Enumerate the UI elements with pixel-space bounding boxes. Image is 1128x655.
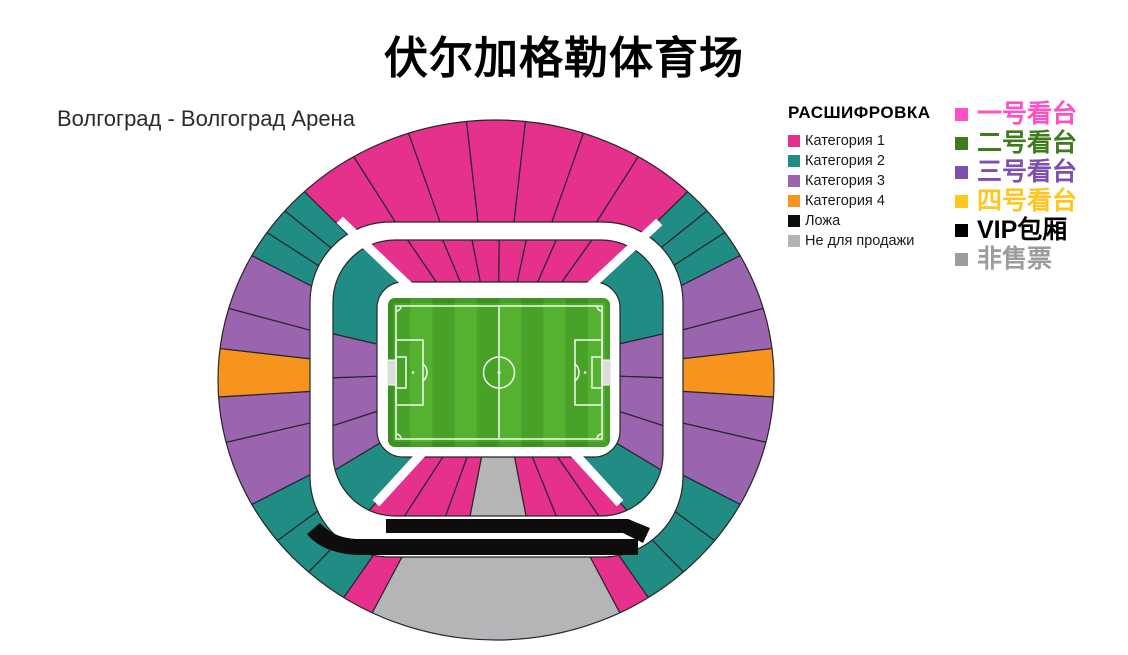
legend-chinese-rows: 一号看台二号看台三号看台四号看台VIP包厢非售票 <box>955 100 1077 274</box>
legend-label: Категория 1 <box>805 133 885 149</box>
legend-label: 一号看台 <box>977 102 1077 127</box>
legend-label: 三号看台 <box>977 160 1077 185</box>
legend-item-ru-6: Не для продажи <box>788 231 931 251</box>
legend-swatch <box>788 235 800 247</box>
legend-swatch <box>955 253 968 266</box>
legend-label: 四号看台 <box>977 189 1077 214</box>
legend-item-ru-4: Категория 4 <box>788 191 931 211</box>
legend-item-ru-2: Категория 2 <box>788 151 931 171</box>
grass-stripe <box>543 298 565 447</box>
legend-label: 非售票 <box>977 247 1052 272</box>
legend-item-cn-5: VIP包厢 <box>955 216 1077 245</box>
stadium-svg <box>0 0 1128 650</box>
legend-label: Категория 3 <box>805 173 885 189</box>
legend-item-ru-1: Категория 1 <box>788 131 931 151</box>
legend-item-cn-2: 二号看台 <box>955 129 1077 158</box>
legend-item-cn-3: 三号看台 <box>955 158 1077 187</box>
legend-swatch <box>955 195 968 208</box>
legend-swatch <box>955 108 968 121</box>
legend-swatch <box>955 166 968 179</box>
legend-russian-title: РАСШИФРОВКА <box>788 103 931 123</box>
football-pitch <box>387 298 611 447</box>
legend-item-ru-5: Ложа <box>788 211 931 231</box>
stadium-map <box>0 0 1128 655</box>
legend-swatch <box>788 135 800 147</box>
legend-russian: РАСШИФРОВКА Категория 1Категория 2Катего… <box>788 103 931 251</box>
legend-chinese: 一号看台二号看台三号看台四号看台VIP包厢非售票 <box>955 100 1077 274</box>
legend-swatch <box>788 195 800 207</box>
legend-item-cn-1: 一号看台 <box>955 100 1077 129</box>
legend-swatch <box>955 224 968 237</box>
legend-label: Категория 4 <box>805 193 885 209</box>
legend-label: Ложа <box>805 213 840 229</box>
legend-russian-rows: Категория 1Категория 2Категория 3Категор… <box>788 131 931 251</box>
legend-swatch <box>955 137 968 150</box>
legend-label: 二号看台 <box>977 131 1077 156</box>
legend-item-cn-4: 四号看台 <box>955 187 1077 216</box>
legend-swatch <box>788 155 800 167</box>
vip-loge-strips <box>307 519 650 555</box>
legend-item-cn-6: 非售票 <box>955 245 1077 274</box>
legend-item-ru-3: Категория 3 <box>788 171 931 191</box>
grass-stripe <box>499 298 521 447</box>
legend-swatch <box>788 215 800 227</box>
legend-swatch <box>788 175 800 187</box>
grass-stripe <box>455 298 477 447</box>
legend-label: Не для продажи <box>805 233 914 249</box>
legend-label: Категория 2 <box>805 153 885 169</box>
legend-label: VIP包厢 <box>977 218 1067 243</box>
